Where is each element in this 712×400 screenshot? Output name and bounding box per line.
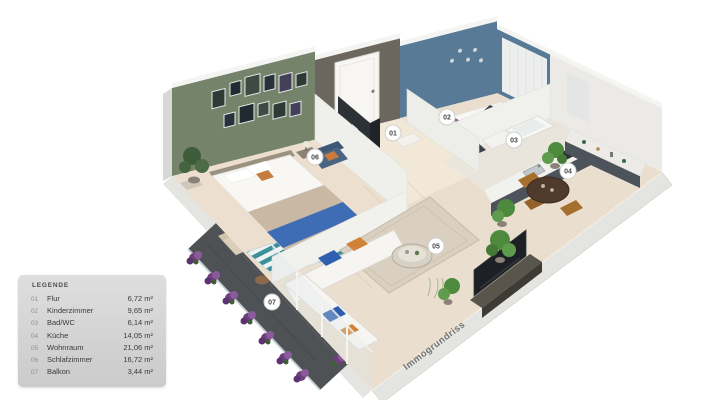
- legend-room-label: Flur: [47, 294, 128, 303]
- legend-room-label: Wohnraum: [47, 343, 123, 352]
- faucet: [538, 165, 541, 168]
- svg-text:03: 03: [510, 138, 518, 145]
- room-badge-wohnraum: 05: [428, 238, 444, 254]
- legend-number: 02: [31, 308, 47, 315]
- legend-room-area: 6,14 m²: [128, 318, 153, 327]
- legend-number: 05: [31, 345, 47, 352]
- svg-text:07: 07: [268, 300, 276, 307]
- legend-room-area: 14,05 m²: [123, 331, 153, 340]
- legend-room-label: Balkon: [47, 367, 128, 376]
- legend-number: 01: [31, 296, 47, 303]
- svg-text:05: 05: [432, 244, 440, 251]
- legend-room-area: 21,06 m²: [123, 343, 153, 352]
- room-badge-schlafzimmer: 06: [307, 149, 323, 165]
- room-badge-kueche: 04: [560, 163, 576, 179]
- legend-room-label: Schlafzimmer: [47, 355, 123, 364]
- svg-text:04: 04: [564, 169, 572, 176]
- legend-room-area: 3,44 m²: [128, 367, 153, 376]
- legend-number: 06: [31, 357, 47, 364]
- legend-room-label: Kinderzimmer: [47, 306, 128, 315]
- legend-room-area: 16,72 m²: [123, 355, 153, 364]
- legend-row-flur: 01 Flur 6,72 m²: [31, 294, 153, 306]
- room-badge-kinderzimmer: 02: [439, 109, 455, 125]
- room-badge-flur: 01: [385, 125, 401, 141]
- legend-room-area: 6,72 m²: [128, 294, 153, 303]
- legend-number: 07: [31, 369, 47, 376]
- legend-row-balkon: 07 Balkon 3,44 m²: [31, 367, 153, 379]
- legend-number: 04: [31, 333, 47, 340]
- room-badge-bad-wc: 03: [506, 132, 522, 148]
- legend-title: LEGENDE: [32, 282, 153, 289]
- dining-table: [527, 177, 569, 203]
- legend-panel: LEGENDE 01 Flur 6,72 m² 02 Kinderzimmer …: [18, 275, 166, 387]
- svg-text:01: 01: [389, 131, 397, 138]
- legend-room-label: Küche: [47, 331, 123, 340]
- legend-row-schlafzimmer: 06 Schlafzimmer 16,72 m²: [31, 355, 153, 367]
- svg-text:02: 02: [443, 115, 451, 122]
- legend-room-label: Bad/WC: [47, 318, 128, 327]
- legend-number: 03: [31, 320, 47, 327]
- legend-row-bad-wc: 03 Bad/WC 6,14 m²: [31, 318, 153, 330]
- svg-text:06: 06: [311, 155, 319, 162]
- floorplan-image: Immogrundriss 01 02 03 04 05 06 07: [0, 0, 712, 400]
- legend-room-area: 9,65 m²: [128, 306, 153, 315]
- room-badge-balkon: 07: [264, 294, 280, 310]
- legend-row-kinderzimmer: 02 Kinderzimmer 9,65 m²: [31, 306, 153, 318]
- legend-row-kueche: 04 Küche 14,05 m²: [31, 331, 153, 343]
- coffee-table: [392, 244, 432, 268]
- legend-row-wohnraum: 05 Wohnraum 21,06 m²: [31, 343, 153, 355]
